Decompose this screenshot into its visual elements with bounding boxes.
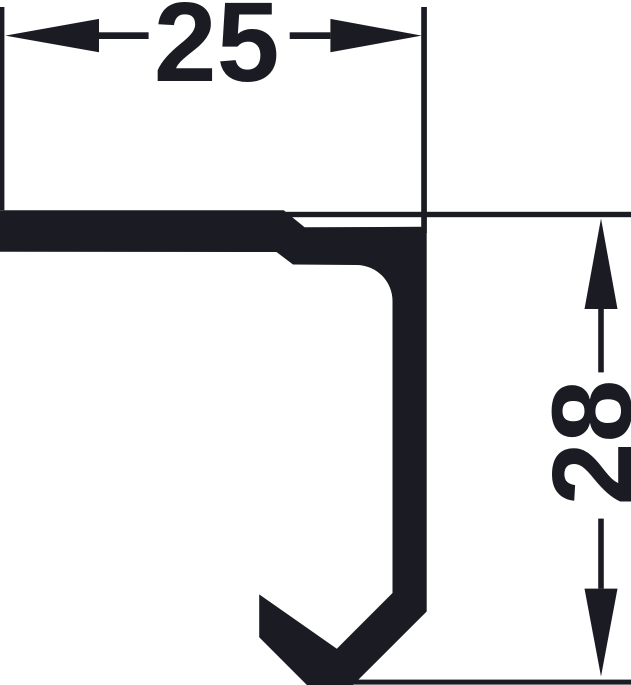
svg-text:25: 25 xyxy=(154,0,280,105)
svg-text:28: 28 xyxy=(529,380,631,506)
